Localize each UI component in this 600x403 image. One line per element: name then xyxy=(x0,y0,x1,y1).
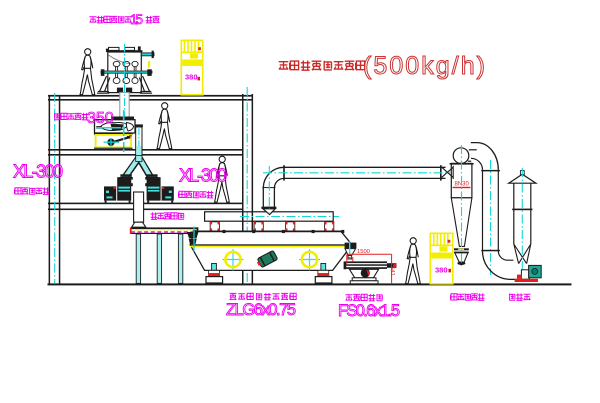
svg-text:1.5: 1.5 xyxy=(130,12,143,27)
svg-text:ZLG6x0.75: ZLG6x0.75 xyxy=(226,301,296,319)
svg-text:XL-300: XL-300 xyxy=(13,162,63,182)
svg-text:380: 380 xyxy=(185,73,198,82)
svg-text:XL-300: XL-300 xyxy=(179,166,227,186)
svg-text:FS0.6x1.5: FS0.6x1.5 xyxy=(338,302,400,320)
svg-text:350: 350 xyxy=(87,110,114,127)
svg-text:541: 541 xyxy=(389,266,395,276)
svg-text:1500: 1500 xyxy=(357,249,370,255)
svg-text:380: 380 xyxy=(435,266,448,275)
svg-text:(500kg/h): (500kg/h) xyxy=(363,52,485,80)
